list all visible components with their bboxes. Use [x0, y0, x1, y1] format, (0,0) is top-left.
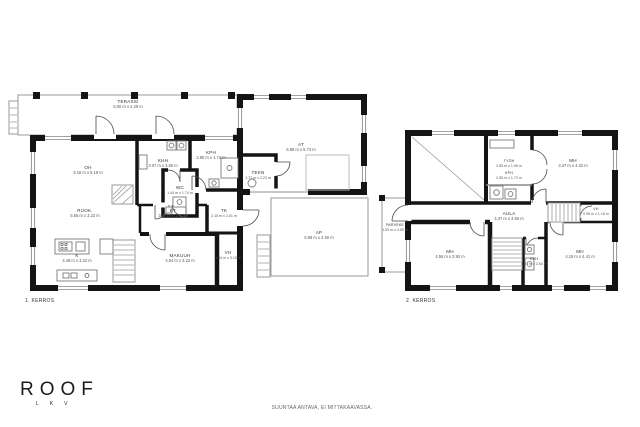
room-dims-mh3: 4.19 m x 4.41 m: [565, 254, 595, 259]
porch-steps: [257, 235, 270, 277]
floor2-stairs-upper: [548, 203, 580, 222]
logo-text: ROOF: [20, 380, 99, 399]
floor2-plan: PARVEKE 1.53 m x 4.09 m TYÖH 2.55 m x 1.…: [379, 130, 619, 305]
room-label-tyoh: TYÖH: [504, 159, 515, 163]
room-label-kph2: KPH: [530, 257, 538, 261]
room-dims-tyoh: 2.55 m x 1.95 m: [496, 164, 522, 168]
logo-subtext: LKV: [20, 401, 99, 407]
room-dims-kph2: 1.07 m x 2.64 m: [521, 262, 547, 266]
floor2-stairs-lower: [492, 238, 522, 270]
room-label-tekn: TEKN: [251, 170, 264, 175]
room-dims-wc: 1.44 m x 1.74 m: [167, 191, 193, 195]
room-label-wc: WC: [176, 185, 185, 190]
room-dims-kph-top: 2.55 m x 1.72 m: [496, 176, 522, 180]
room-dims-khh: 3.07 m x 3.65 m: [148, 163, 178, 168]
disclaimer-text: SUUNTAA ANTAVA, EI MITTAKAAVASSA.: [272, 405, 373, 411]
room-dims-aula: 4.37 m x 3.55 m: [494, 216, 524, 221]
tekn-heater: [248, 179, 256, 187]
room-dims-at: 6.89 m x 5.74 m: [286, 147, 316, 152]
floor1-plan: TERASSI 5.00 m x 2.28 m OH 5.18 m x 5.18…: [9, 92, 368, 304]
floorplan-page: TERASSI 5.00 m x 2.28 m OH 5.18 m x 5.18…: [0, 0, 640, 427]
room-dims-et: 3.37 m x 1.82 m: [158, 213, 188, 218]
room-dims-parveke: 1.53 m x 4.09 m: [382, 228, 408, 232]
room-dims-tekn: 1.72 m x 2.23 m: [245, 176, 271, 180]
room-label-tk: TK: [221, 208, 228, 213]
room-dims-ruok: 5.55 m x 3.22 m: [70, 213, 100, 218]
room-dims-terassi: 5.00 m x 2.28 m: [113, 104, 143, 109]
room-dims-tk: 2.15 m x 2.01 m: [211, 214, 237, 218]
floor1-stairs: [113, 240, 135, 282]
room-dims-makuuh: 4.04 m x 3.22 m: [165, 258, 195, 263]
floor1-label: 1. KERROS: [25, 298, 55, 304]
room-dims-ap: 6.59 m x 2.50 m: [304, 235, 334, 240]
room-label-kph-top: KPH: [505, 171, 513, 175]
floorplan-drawing: TERASSI 5.00 m x 2.28 m OH 5.18 m x 5.18…: [0, 0, 640, 427]
balcony-structure: [379, 195, 408, 273]
roof-lkv-logo: ROOF LKV: [20, 380, 99, 407]
room-dims-mh2: 4.56 m x 3.92 m: [435, 254, 465, 259]
room-dims-vh2: 0.95 m x 1.15 m: [583, 212, 609, 216]
room-label-vh2: VH: [593, 207, 599, 211]
room-dims-mh1: 3.37 m x 4.32 m: [558, 163, 588, 168]
room-dims-kph: 2.80 m x 1.72 m: [196, 155, 226, 160]
room-label-vh: VH: [225, 250, 232, 255]
room-label-parveke: PARVEKE: [386, 223, 404, 227]
room-dims-vh: 1.44 m x 3.15 m: [215, 256, 241, 260]
floor2-label: 2. KERROS: [406, 298, 436, 304]
room-dims-k: 4.49 m x 3.22 m: [62, 258, 92, 263]
fireplace: [112, 185, 133, 204]
room-dims-oh: 5.18 m x 5.18 m: [73, 170, 103, 175]
